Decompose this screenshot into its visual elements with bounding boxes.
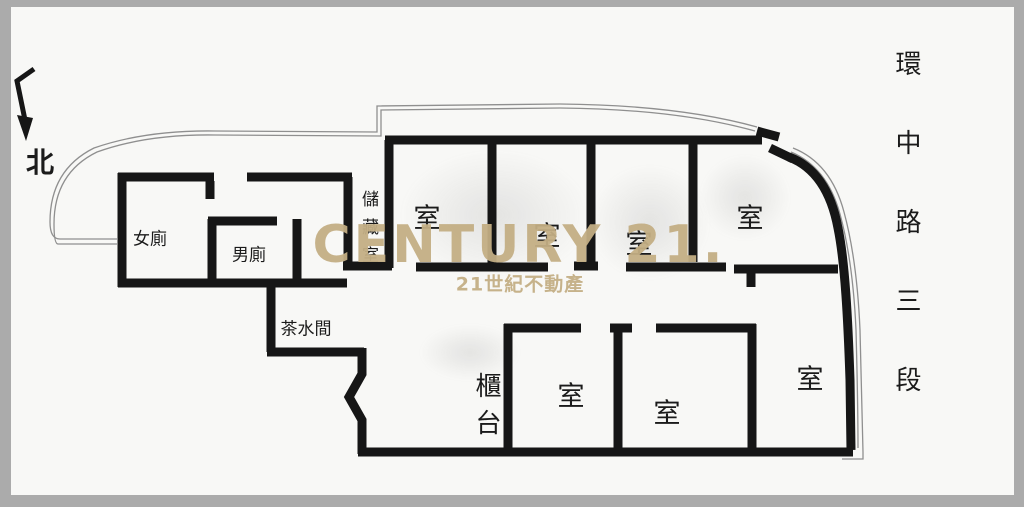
floor-plan-image: 北 女廁 男廁 儲藏室 茶水間 室 室 室 室 櫃台 室 室 室 環中路三段 C… [0,0,1024,507]
label-room-bottom-1: 室 [558,384,585,411]
label-room-bottom-2: 室 [654,401,681,428]
label-counter: 櫃台 [473,372,499,446]
label-women-toilet: 女廁 [133,232,167,249]
label-pantry: 茶水間 [281,322,332,339]
wall-notch-a [757,131,779,137]
label-room-top-4: 室 [737,206,764,233]
label-room-bottom-3: 室 [797,367,824,394]
north-arrow-icon [17,69,34,141]
century21-watermark-subtitle: 21世紀不動產 [456,270,584,297]
north-label: 北 [26,149,54,177]
label-men-toilet: 男廁 [232,248,266,265]
street-name-label: 環中路三段 [893,50,919,445]
century21-watermark: CENTURY 21. [313,215,726,275]
wall-right-curve [789,157,851,450]
wall-entry-zigzag [349,348,362,454]
